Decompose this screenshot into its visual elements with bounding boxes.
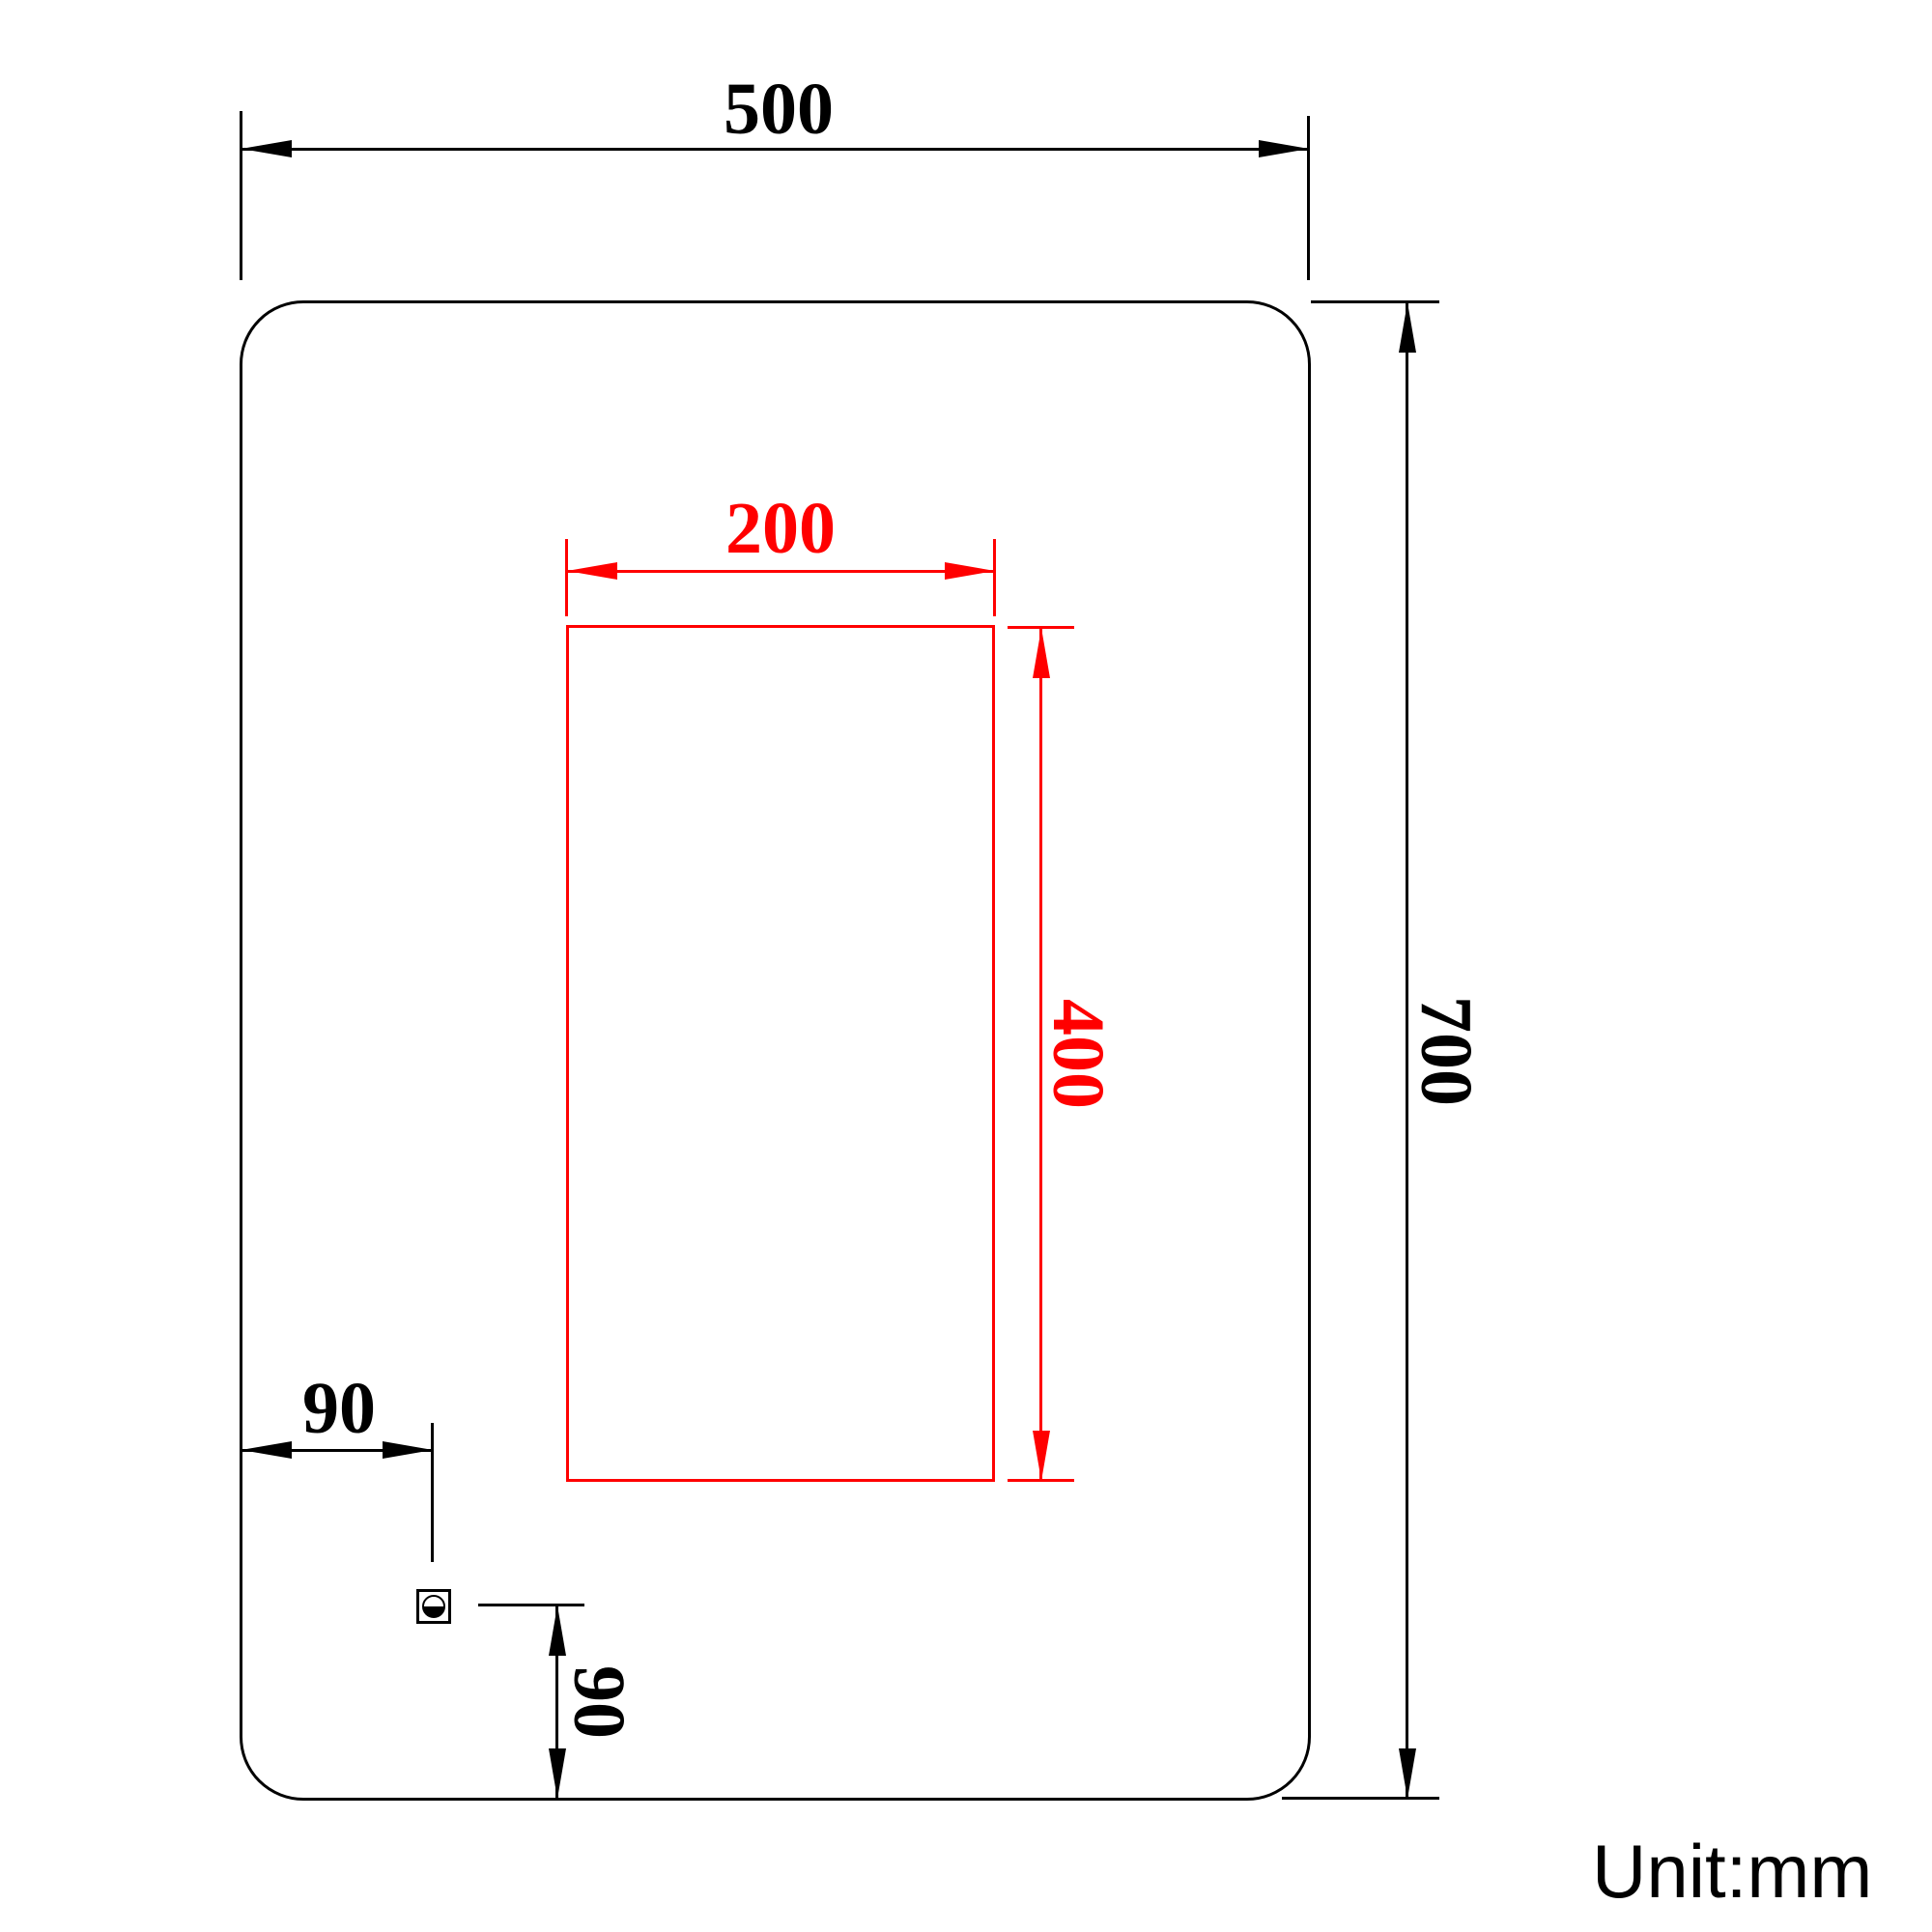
- touch-sensor-icon: [416, 1589, 451, 1624]
- arrow-up-icon: [1033, 628, 1050, 678]
- dim-label-sensor-y: 90: [562, 1665, 636, 1739]
- dim-label-outer-width: 500: [724, 72, 834, 146]
- dim-label-inner-height: 400: [1041, 999, 1115, 1109]
- extension-line: [478, 1604, 584, 1606]
- extension-line: [431, 1423, 434, 1562]
- arrow-left-icon: [241, 140, 292, 157]
- arrow-left-icon: [567, 562, 617, 580]
- technical-drawing: 500 700 200 400 90: [0, 0, 1932, 1932]
- arrow-right-icon: [383, 1441, 433, 1459]
- touch-sensor-circle-icon: [422, 1595, 445, 1618]
- unit-note: Unit:mm: [1592, 1833, 1872, 1909]
- extension-line: [1311, 300, 1439, 303]
- extension-line: [240, 111, 242, 280]
- dim-label-sensor-x: 90: [302, 1372, 376, 1445]
- arrow-up-icon: [549, 1605, 566, 1656]
- arrow-down-icon: [1399, 1748, 1416, 1799]
- inner-zone-outline: [566, 625, 995, 1482]
- arrow-up-icon: [1399, 302, 1416, 353]
- arrow-left-icon: [241, 1441, 292, 1459]
- dim-label-inner-width: 200: [725, 492, 836, 565]
- dim-label-outer-height: 700: [1409, 996, 1483, 1106]
- dimension-line: [567, 570, 995, 573]
- arrow-down-icon: [1033, 1431, 1050, 1481]
- arrow-right-icon: [1259, 140, 1309, 157]
- arrow-right-icon: [945, 562, 995, 580]
- arrow-down-icon: [549, 1748, 566, 1799]
